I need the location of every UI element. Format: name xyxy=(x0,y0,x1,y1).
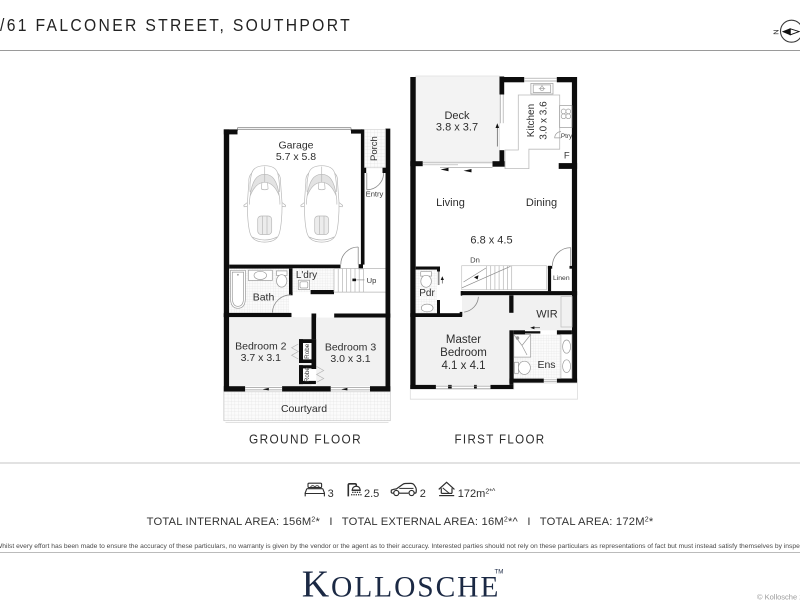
svg-text:Ens: Ens xyxy=(537,359,555,371)
svg-text:Porch: Porch xyxy=(369,136,380,161)
svg-text:Kitchen: Kitchen xyxy=(526,104,537,137)
svg-text:3.8 x 3.7: 3.8 x 3.7 xyxy=(436,122,478,134)
svg-text:GROUND FLOOR: GROUND FLOOR xyxy=(249,432,362,447)
svg-text:Bedroom 2: Bedroom 2 xyxy=(235,341,287,353)
svg-text:3.0 x 3.6: 3.0 x 3.6 xyxy=(539,101,550,140)
svg-text:Courtyard: Courtyard xyxy=(281,403,327,415)
svg-text:TM: TM xyxy=(495,569,504,576)
svg-text:Ptry: Ptry xyxy=(561,133,573,140)
svg-text:Linen: Linen xyxy=(553,275,570,282)
svg-text:F: F xyxy=(564,151,570,162)
svg-text:3: 3 xyxy=(328,488,334,500)
svg-text:2: 2 xyxy=(420,488,426,500)
svg-text:Pdr: Pdr xyxy=(419,288,435,299)
svg-text:Living: Living xyxy=(436,197,465,209)
svg-text:Robe: Robe xyxy=(304,367,311,383)
svg-text:Bedroom 3: Bedroom 3 xyxy=(325,342,377,354)
svg-text:Master: Master xyxy=(446,334,481,346)
svg-text:4.1 x 4.1: 4.1 x 4.1 xyxy=(441,360,485,372)
svg-text:Robe: Robe xyxy=(304,343,311,359)
svg-text:6.8 x 4.5: 6.8 x 4.5 xyxy=(470,235,512,247)
svg-text:Entry: Entry xyxy=(366,189,384,198)
svg-text:Bedroom: Bedroom xyxy=(440,347,487,359)
svg-text:Garage: Garage xyxy=(278,140,313,152)
svg-text:Deck: Deck xyxy=(444,110,470,122)
svg-text:Dn: Dn xyxy=(470,256,480,265)
svg-text:2.5: 2.5 xyxy=(364,488,379,500)
svg-text:© Kollosche 20: © Kollosche 20 xyxy=(757,593,800,600)
svg-text:3.7 x 3.1: 3.7 x 3.1 xyxy=(241,352,281,364)
svg-text:5.7 x 5.8: 5.7 x 5.8 xyxy=(276,151,316,163)
svg-text:Dining: Dining xyxy=(526,197,557,209)
svg-text:FIRST FLOOR: FIRST FLOOR xyxy=(455,432,546,447)
svg-text:/61 FALCONER STREET, SOUTHPORT: /61 FALCONER STREET, SOUTHPORT xyxy=(0,15,352,35)
svg-text:L'dry: L'dry xyxy=(296,270,317,281)
svg-text:WIR: WIR xyxy=(536,309,557,321)
svg-text:Up: Up xyxy=(367,276,377,285)
svg-text:Bath: Bath xyxy=(253,291,275,303)
svg-text:N: N xyxy=(771,29,780,34)
svg-text:3.0 x 3.1: 3.0 x 3.1 xyxy=(330,353,370,365)
svg-text:TOTAL INTERNAL AREA: 156M2* I: TOTAL INTERNAL AREA: 156M2* I TOTAL EXTE… xyxy=(147,516,654,528)
svg-text:Whilst every effort has been m: Whilst every effort has been made to ens… xyxy=(0,543,800,550)
